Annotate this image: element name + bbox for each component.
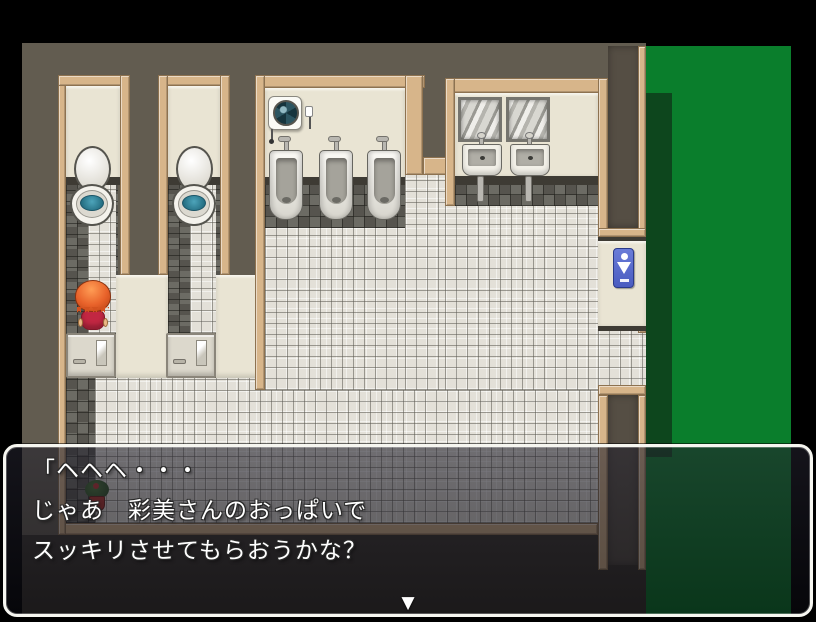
sink-alcove-right-wall bbox=[598, 78, 608, 237]
floor-tiles-light bbox=[598, 331, 646, 390]
dialogue-line: 「ヘヘヘ・・・ bbox=[32, 451, 367, 491]
outside-grass-shadow bbox=[646, 93, 672, 457]
floor-tiles-light bbox=[405, 175, 445, 390]
urinal-room-top-wall bbox=[255, 75, 425, 88]
urinal-2 bbox=[319, 136, 353, 224]
toilet-water bbox=[80, 195, 104, 211]
sink-1 bbox=[462, 132, 502, 206]
sign-person-icon bbox=[621, 253, 628, 260]
floor-tiles-light bbox=[445, 206, 598, 390]
urinal-1 bbox=[269, 136, 303, 224]
stall2-left-wall bbox=[158, 75, 168, 275]
corridor-top-interior bbox=[608, 46, 640, 228]
drain-pipe bbox=[477, 176, 484, 202]
character-hand bbox=[103, 318, 108, 327]
floor-tiles-light bbox=[265, 228, 405, 390]
dialogue-line: スッキリさせてもらおうかな？ bbox=[32, 531, 367, 571]
message-window[interactable]: 「ヘヘヘ・・・ じゃあ 彩美さんのおっぱいで スッキリさせてもらおうかな？ ▼ bbox=[3, 444, 813, 617]
urinal-room-right-wall bbox=[405, 75, 423, 175]
toilet-1 bbox=[68, 146, 116, 232]
corridor-bottom-lintel bbox=[598, 385, 646, 395]
npc-character bbox=[74, 278, 112, 332]
restroom-sign bbox=[613, 248, 634, 288]
stall2-right-wall bbox=[220, 75, 230, 275]
ventilation-fan bbox=[268, 96, 302, 130]
door-handle bbox=[73, 359, 86, 364]
toilet-water bbox=[182, 195, 206, 211]
dialogue-line: じゃあ 彩美さんのおっぱいで bbox=[32, 491, 367, 531]
toilet-2 bbox=[170, 146, 218, 232]
sink-alcove-left-wall bbox=[445, 78, 455, 206]
character-hand bbox=[78, 318, 83, 327]
urinal-room-left-wall bbox=[255, 75, 265, 390]
fan-blade-icon bbox=[273, 100, 299, 126]
drain-pipe bbox=[525, 176, 532, 202]
urinal-3 bbox=[367, 136, 401, 224]
sink-alcove-top-wall bbox=[445, 78, 608, 93]
continue-indicator-icon: ▼ bbox=[401, 593, 414, 613]
sink-2 bbox=[510, 132, 550, 206]
door-handle bbox=[173, 359, 186, 364]
stall-front-wall bbox=[116, 275, 168, 378]
fan-switch bbox=[305, 106, 313, 117]
connector-wall bbox=[423, 157, 447, 175]
corridor-top-sill bbox=[598, 228, 646, 237]
stall-door-2 bbox=[166, 333, 216, 378]
stall-door-1 bbox=[66, 333, 116, 378]
wall-floor-shadow bbox=[598, 326, 646, 331]
game-viewport[interactable]: 「ヘヘヘ・・・ じゃあ 彩美さんのおっぱいで スッキリさせてもらおうかな？ ▼ bbox=[0, 0, 816, 622]
dialogue-text: 「ヘヘヘ・・・ じゃあ 彩美さんのおっぱいで スッキリさせてもらおうかな？ bbox=[32, 451, 367, 571]
stall1-right-wall bbox=[120, 75, 130, 275]
character-hair-fringe bbox=[77, 307, 109, 315]
